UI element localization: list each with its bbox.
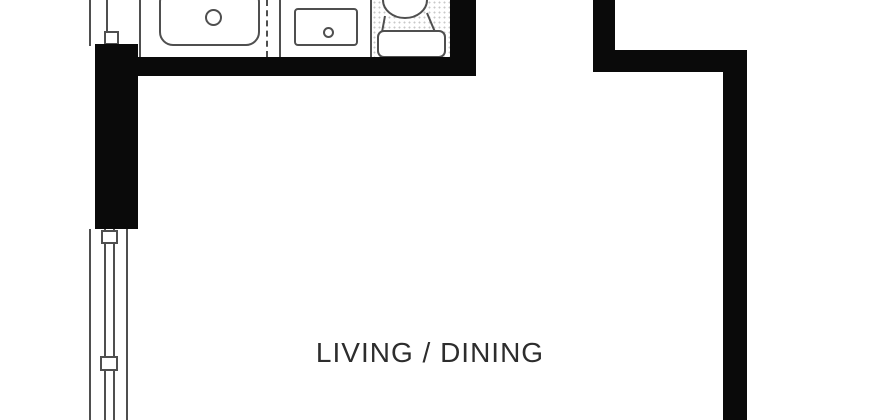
window-mullion	[101, 230, 118, 244]
window-mullion	[100, 356, 118, 371]
room-label-living-dining: LIVING / DINING	[316, 339, 544, 367]
wall-top-right-vertical	[593, 0, 615, 52]
counter-divider-dashed	[266, 0, 268, 57]
toilet	[372, 0, 450, 58]
wall-left	[95, 44, 138, 229]
kitchen-sink-drain	[205, 9, 222, 26]
bathroom-floor	[372, 0, 450, 58]
window-line	[126, 229, 128, 420]
window-line	[89, 0, 91, 46]
floorplan: LIVING / DINING	[0, 0, 870, 420]
wall-right	[723, 50, 747, 420]
window-mullion	[104, 31, 119, 45]
wall-kitchen-bottom	[138, 57, 476, 76]
kitchen-basin-drain	[323, 27, 334, 38]
window-line	[104, 229, 106, 420]
counter-divider	[279, 0, 281, 57]
window-line	[89, 229, 91, 420]
counter-edge	[139, 0, 141, 57]
window-line	[113, 229, 115, 420]
